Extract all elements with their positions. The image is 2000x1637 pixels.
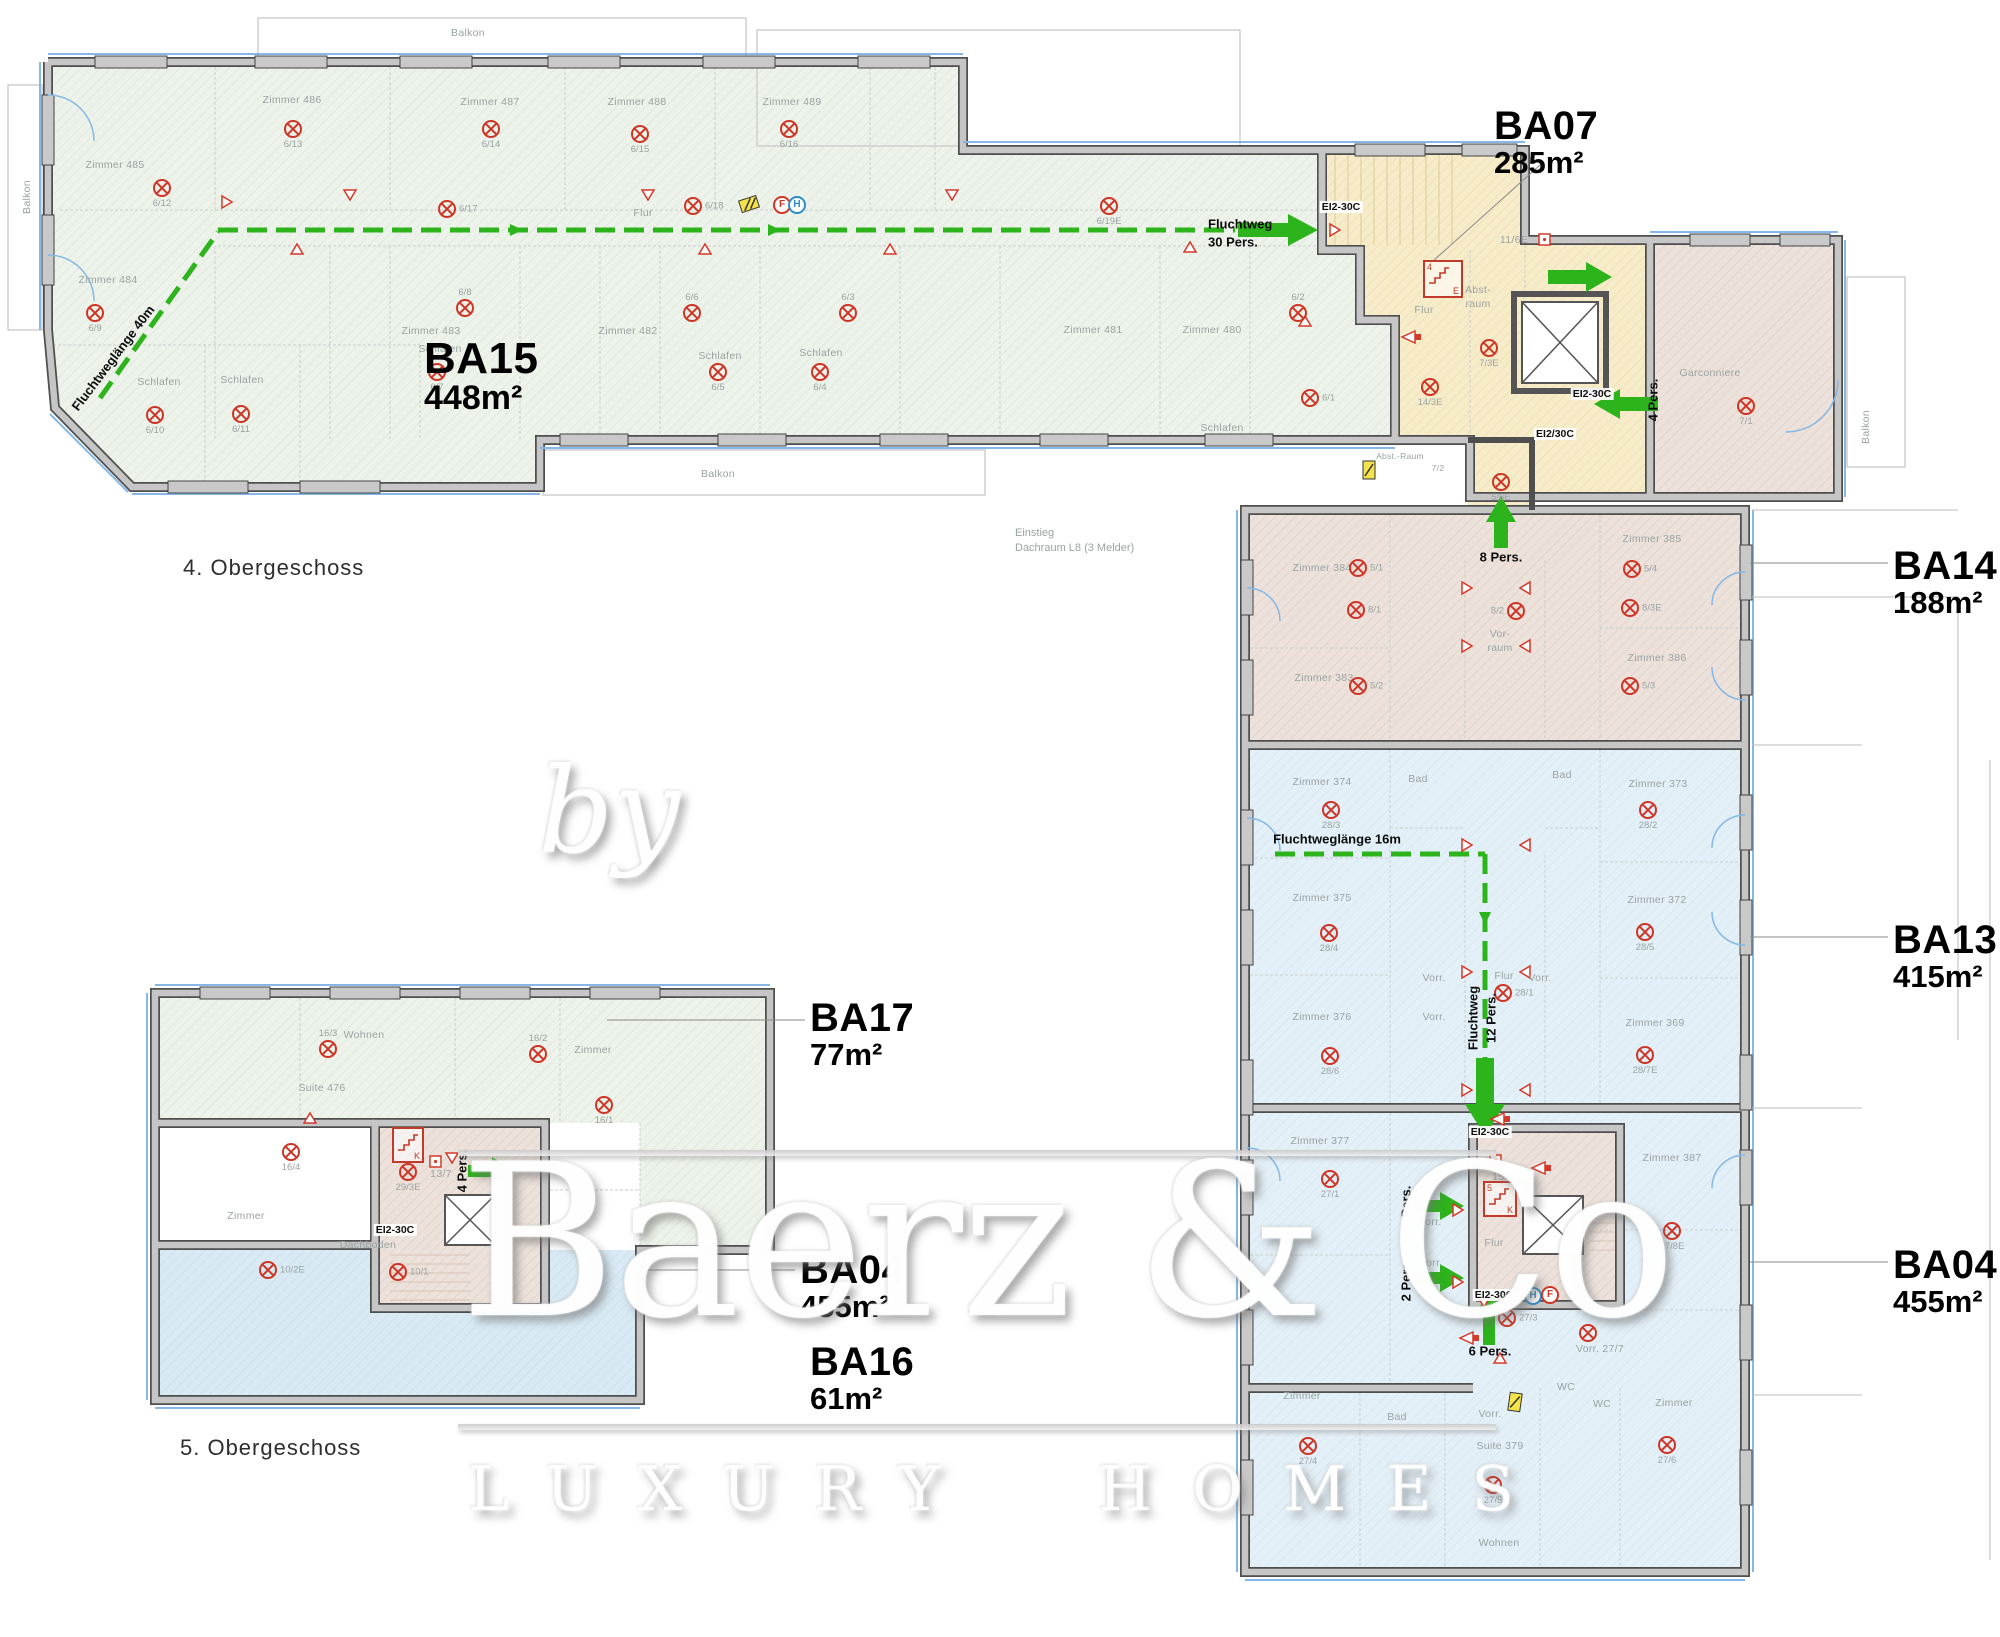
- plan-linework: [0, 0, 2000, 1637]
- area-fills: [48, 62, 1838, 1572]
- floorplan-canvas: BalkonBalkonBalkonBalkonZimmer 485Zimmer…: [0, 0, 2000, 1637]
- construction-gridlines: [1752, 510, 1990, 1560]
